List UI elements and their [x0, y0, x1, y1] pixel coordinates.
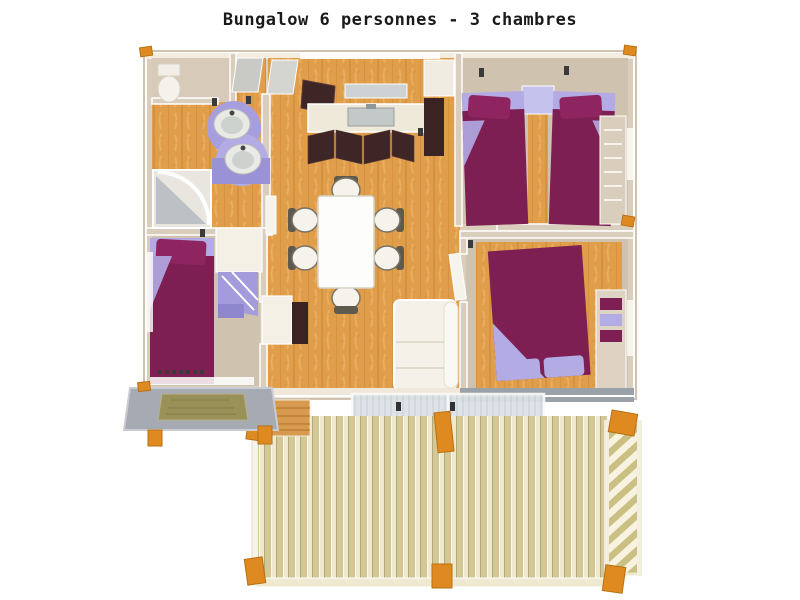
sink-top-basin [221, 116, 243, 134]
bungalow-floorplan-render [0, 0, 800, 600]
porch-leg-left [148, 430, 162, 446]
bracket-right-mid [621, 215, 635, 227]
terrace [244, 400, 642, 593]
chair-left-1 [288, 208, 318, 232]
left-bedroom-window-side [146, 252, 153, 332]
base-cabinet-4 [392, 130, 414, 162]
left-bedroom-bed [150, 238, 214, 384]
open-door-panel-right [267, 60, 298, 94]
bunk-bed-edge [218, 304, 244, 318]
sink-bottom-basin [232, 151, 254, 169]
post-foot-right [602, 565, 625, 594]
chair-seat [374, 246, 400, 270]
terrace-deck [258, 416, 608, 580]
sconce-icon [246, 96, 251, 104]
base-cabinet-2 [336, 130, 362, 164]
wardrobe-linen-2 [600, 314, 622, 326]
sconce-icon [418, 128, 423, 136]
railing-rail-outer [637, 420, 642, 576]
sconce-icon [200, 229, 205, 237]
porch-leg-right [258, 426, 272, 444]
range-hood-shelf [345, 84, 407, 98]
railing-rail-inner [604, 420, 609, 576]
twin-wardrobe [600, 116, 626, 224]
twin-bed-left [462, 91, 529, 226]
post-foot-left [244, 557, 265, 585]
toilet-bowl [158, 76, 180, 102]
side-panel-dark [292, 302, 308, 344]
double-bed-pillow-right [543, 355, 584, 378]
double-bedroom-window [627, 300, 633, 356]
sconce-icon [212, 98, 217, 106]
chair-right-1 [374, 208, 404, 232]
faucet-top [230, 111, 235, 116]
dining-table [318, 196, 374, 288]
sconce-icon [479, 68, 484, 77]
twin-bedroom-left-wall [455, 53, 462, 226]
twin-bed-left-pillow [467, 95, 510, 120]
floorplan-page: Bungalow 6 personnes - 3 chambres [0, 0, 800, 600]
bracket-top-left [140, 46, 153, 57]
wardrobe-linen-3 [600, 330, 622, 342]
tall-cabinet-dark [424, 98, 444, 156]
twin-bedroom-window [627, 128, 633, 180]
open-door-panel-left [232, 58, 263, 92]
kitchen-sink [348, 108, 394, 126]
chair-seat [374, 208, 400, 232]
twin-bed-right-pillow [559, 95, 602, 120]
double-bed-pillow-left [499, 358, 540, 381]
double-bed [488, 245, 591, 381]
faucet-bottom [241, 146, 246, 151]
side-cabinet-white [262, 296, 292, 344]
base-cabinet-1 [308, 130, 334, 164]
left-bedroom-right-wall-b [260, 344, 267, 392]
sconce-icon [564, 66, 569, 75]
base-cabinet-3 [364, 130, 390, 164]
nightstand [522, 86, 554, 114]
sofa [394, 300, 458, 390]
railing-slats [606, 422, 640, 574]
double-bedroom-left-wall-a [460, 238, 467, 254]
wardrobe-linen-1 [600, 298, 622, 310]
chair-back [334, 306, 358, 314]
door-handle-left [396, 402, 401, 411]
fridge [424, 60, 454, 96]
twin-bedroom-wood-strip [528, 96, 548, 224]
chair-seat [292, 246, 318, 270]
toilet-tank [158, 64, 180, 76]
post-foot-middle [432, 564, 452, 588]
kitchen-window-band [300, 53, 440, 59]
sofa-armrest [444, 302, 458, 388]
door-handle-right [450, 402, 455, 411]
chair-seat [292, 208, 318, 232]
bracket-top-right [623, 45, 636, 56]
bathroom-door-open [266, 196, 276, 234]
chair-bottom [332, 286, 360, 314]
double-bedroom-left-wall-b [460, 302, 467, 392]
chair-right-2 [374, 246, 404, 270]
left-bedroom-bunk [218, 272, 258, 318]
kitchen-faucet [366, 104, 376, 109]
post-top-right [608, 410, 637, 436]
bracket-bottom-left [138, 381, 151, 391]
left-bedroom-window-bottom [150, 377, 254, 385]
left-bedroom-wardrobe [216, 228, 262, 272]
chair-left-2 [288, 246, 318, 270]
twin-bedroom-bottom-wall [497, 224, 634, 231]
sconce-icon [468, 240, 473, 248]
double-bedroom-top-wall [460, 231, 634, 238]
terrace-railing-right [604, 420, 642, 576]
doormat [158, 394, 248, 420]
